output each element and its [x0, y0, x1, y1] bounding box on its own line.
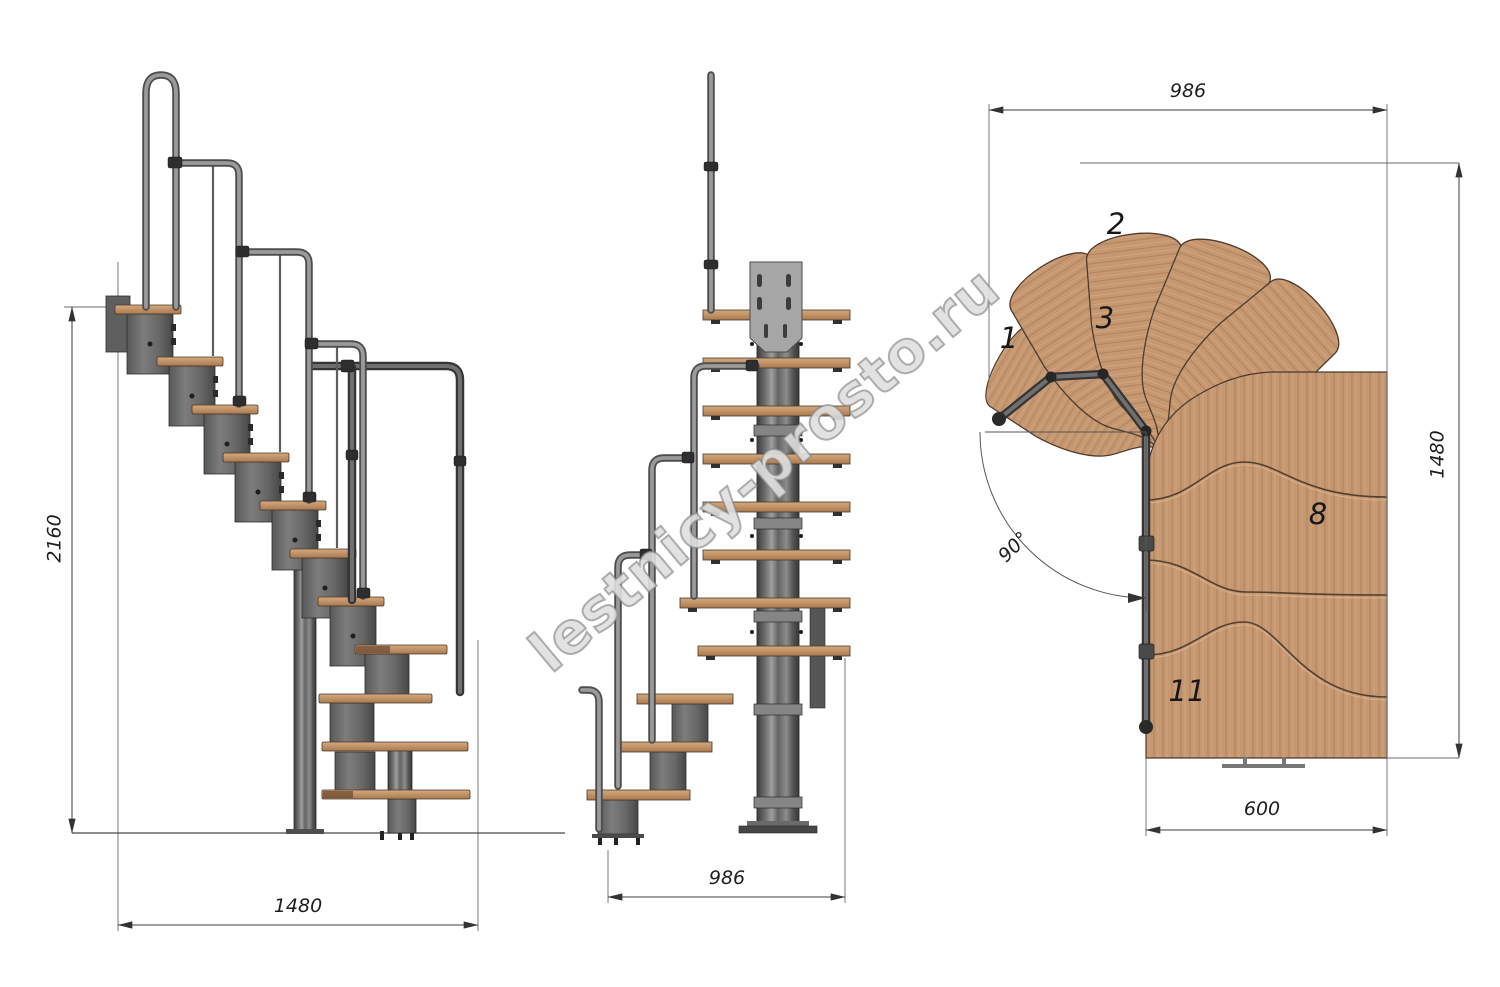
- dim-label-side-height: 2160: [45, 498, 66, 578]
- plan-view: [974, 104, 1459, 836]
- central-column: [739, 310, 817, 833]
- step-modules: [127, 314, 416, 833]
- dim-label-plan-width: 986: [1148, 81, 1228, 102]
- dim-label-side-width: 1480: [258, 896, 338, 917]
- dim-label-front-width: 986: [687, 868, 767, 889]
- side-elevation-view: [64, 75, 565, 931]
- tread-number-11: 11: [1157, 676, 1217, 708]
- top-mounting-plate: [750, 262, 802, 352]
- tread-number-2: 2: [1096, 209, 1136, 241]
- handrail-post: [704, 75, 718, 310]
- wall-bracket: [106, 296, 130, 352]
- drawing-canvas: 2160 1480 986 986 1480 600 90° 1 2 3 8 1…: [0, 0, 1500, 987]
- side-treads: [115, 305, 470, 799]
- plan-angle-90: [980, 432, 1146, 612]
- dim-label-plan-depth: 1480: [1428, 414, 1449, 494]
- dim-label-plan-flight-width: 600: [1222, 799, 1302, 820]
- tread-number-1: 1: [989, 323, 1029, 355]
- tread-number-3: 3: [1085, 303, 1125, 335]
- tread-number-8: 8: [1298, 499, 1338, 531]
